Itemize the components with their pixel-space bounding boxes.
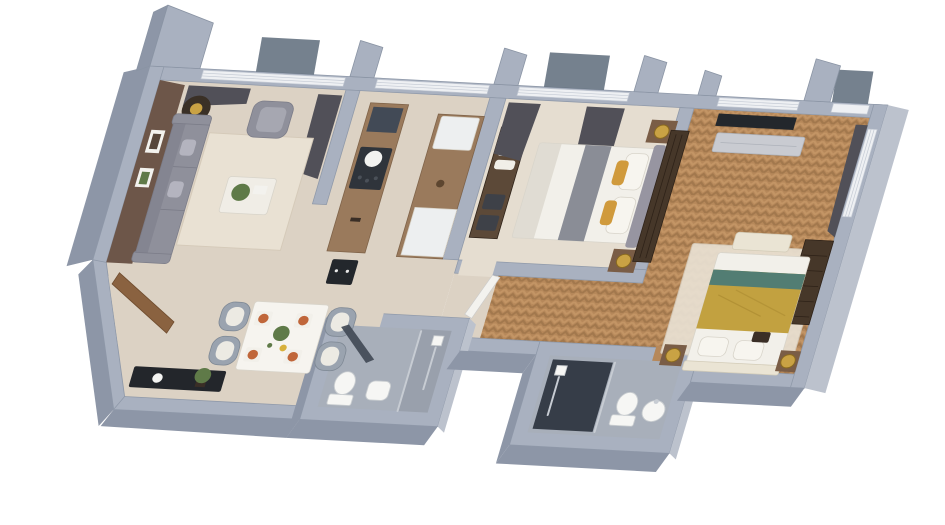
accent-pillow-dark: [751, 331, 771, 342]
pillow: [696, 336, 730, 356]
fin-2: [350, 40, 385, 77]
fin-4: [634, 56, 669, 93]
floor-plan-stage: [0, 0, 945, 525]
bench: [732, 232, 793, 252]
media-console: [712, 133, 806, 157]
window-master-2: [831, 104, 870, 114]
coffee-table: [218, 176, 277, 215]
counter-handle: [350, 217, 361, 221]
pillow: [732, 340, 766, 360]
shower-head: [554, 365, 567, 375]
floor-plan-render: [0, 0, 945, 525]
door-gap-bedroom-2: [458, 258, 497, 277]
fin-3: [494, 48, 529, 85]
coffee-table-book: [252, 185, 268, 194]
glazing-living: [252, 37, 324, 74]
glazing-bedroom-2: [540, 52, 614, 90]
shower-head: [431, 336, 444, 346]
fin-5: [698, 70, 723, 96]
